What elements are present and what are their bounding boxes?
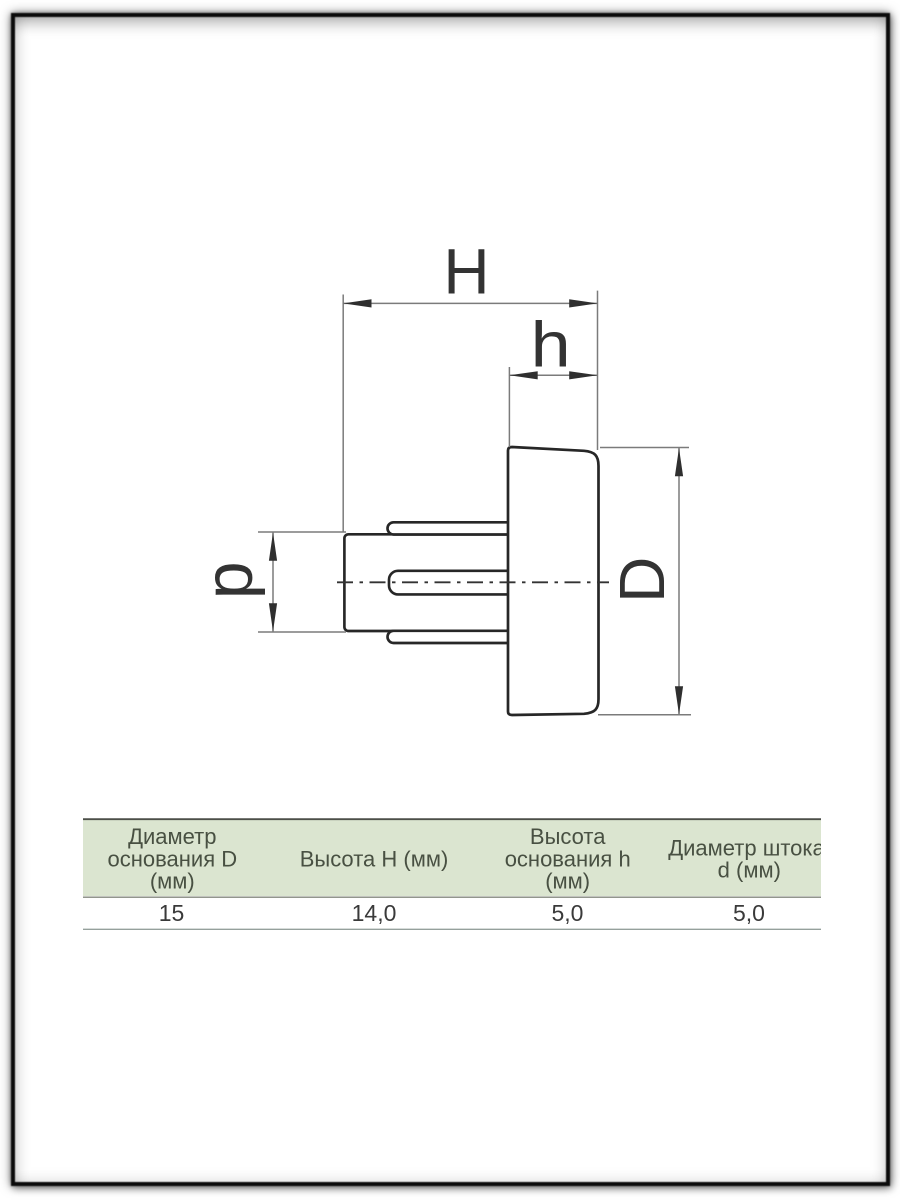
svg-text:(мм): (мм) [545,868,590,893]
svg-text:Высота H (мм): Высота H (мм) [300,846,449,871]
svg-text:15: 15 [159,900,185,926]
svg-text:d: d [201,561,277,599]
svg-text:d (мм): d (мм) [718,858,781,883]
svg-text:H: H [443,236,489,308]
svg-text:5,0: 5,0 [552,900,584,926]
svg-text:h: h [531,308,571,380]
svg-text:(мм): (мм) [150,868,195,893]
svg-text:14,0: 14,0 [352,900,397,926]
svg-text:D: D [606,557,678,603]
svg-text:5,0: 5,0 [733,900,765,926]
